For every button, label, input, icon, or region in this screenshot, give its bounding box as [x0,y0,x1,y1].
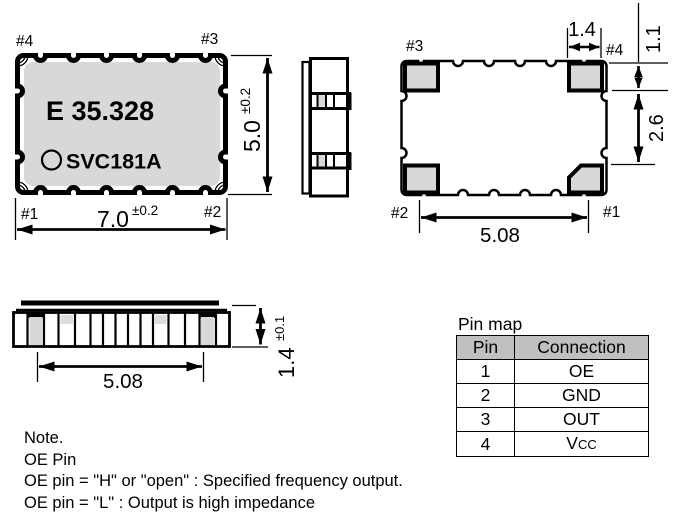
pin-number-cell: 2 [457,384,515,408]
pin-map-section: Pin map Pin Connection 1 OE 2 GND 3 [456,315,666,457]
pin-map-header-pin: Pin [457,336,515,360]
marking-model: SVC181A [66,150,162,174]
table-row: 3 OUT [457,408,649,432]
pin4-label-top-view: #4 [16,33,34,50]
pin-number-cell: 3 [457,408,515,432]
dimension-value-thickness: 1.4 [274,347,299,378]
pin-map-table: Pin Connection 1 OE 2 GND 3 OUT 4 [456,335,649,457]
pin1-label-top-view: #1 [21,206,38,223]
dimension-value-pad-width: 1.4 [568,19,596,41]
castellation-mark-left [61,315,74,324]
castellation-mark-right [155,315,167,324]
marking-frequency: E 35.328 [46,96,154,126]
vcc-main: V [566,433,578,453]
pin-map-header-connection: Connection [515,336,649,360]
dimension-tolerance-width: ±0.2 [132,203,158,218]
pin-connection-cell: GND [515,384,649,408]
dimension-tolerance-height: ±0.2 [238,88,253,114]
dimension-value-pad-pitch-side: 5.08 [103,370,143,393]
dimension-value-width: 7.0 [97,206,129,232]
body-edge [311,59,348,197]
note-line-1: Note. [24,428,403,450]
dimension-pad-vertical-gap: 2.6 [611,94,668,165]
side-view-long-drawing: 5.08 1.4 ±0.1 [0,285,310,410]
dimension-body-thickness: 1.4 ±0.1 [232,306,299,379]
castellation-pad-right [201,317,214,345]
pad-4 [569,64,602,91]
dimension-value-pad-pitch-bottom: 5.08 [480,224,520,247]
top-view-drawing: E 35.328 SVC181A #4 #3 #1 #2 5.0 ±0.2 7.… [0,0,300,250]
pin4-label-bottom-view: #4 [606,42,624,59]
dimension-value-pad-top-offset: 1.1 [643,25,665,53]
note-line-3: OE pin = "H" or "open" : Specified frequ… [24,471,403,493]
dimension-body-height: 5.0 ±0.2 [228,56,272,195]
pin-map-header-row: Pin Connection [457,336,649,360]
dimension-pad-width: 1.4 [568,19,602,58]
pin3-label-top-view: #3 [201,31,218,48]
dimension-value-height: 5.0 [239,120,265,152]
lid-seam [21,301,219,306]
note-line-4: OE pin = "L" : Output is high impedance [24,493,403,515]
pin-connection-cell: VCC [515,432,649,457]
bottom-view-drawing: #3 #4 #2 #1 1.4 1.1 2.6 5.08 [380,0,695,250]
note-line-2: OE Pin [24,450,403,472]
pin1-label-bottom-view: #1 [603,204,620,221]
dimension-body-width: 7.0 ±0.2 [16,198,228,240]
dimension-pad-pitch-bottom: 5.08 [420,200,589,247]
pin-map-title: Pin map [456,315,666,334]
lid-edge [303,62,310,194]
table-row: 4 VCC [457,432,649,457]
body-side-long [14,313,230,347]
dimension-pad-pitch-side: 5.08 [38,352,204,393]
pin3-label-bottom-view: #3 [406,38,423,55]
dimension-tolerance-thickness: ±0.1 [272,316,287,341]
vcc-subscript: CC [578,437,597,452]
pad-3 [405,64,438,91]
technical-drawing-page: E 35.328 SVC181A #4 #3 #1 #2 5.0 ±0.2 7.… [0,0,695,527]
pin-connection-cell: OUT [515,408,649,432]
pin-number-cell: 1 [457,360,515,384]
pin-number-cell: 4 [457,432,515,457]
dimension-value-pad-gap: 2.6 [646,114,668,142]
pin-connection-cell: OE [515,360,649,384]
notes-section: Note. OE Pin OE pin = "H" or "open" : Sp… [24,428,403,514]
table-row: 2 GND [457,384,649,408]
pin2-label-bottom-view: #2 [391,205,408,222]
pad-2 [405,166,438,193]
castellation-pad-left [30,317,43,345]
table-row: 1 OE [457,360,649,384]
pin2-label-top-view: #2 [204,204,221,221]
side-view-short-drawing [295,45,365,205]
